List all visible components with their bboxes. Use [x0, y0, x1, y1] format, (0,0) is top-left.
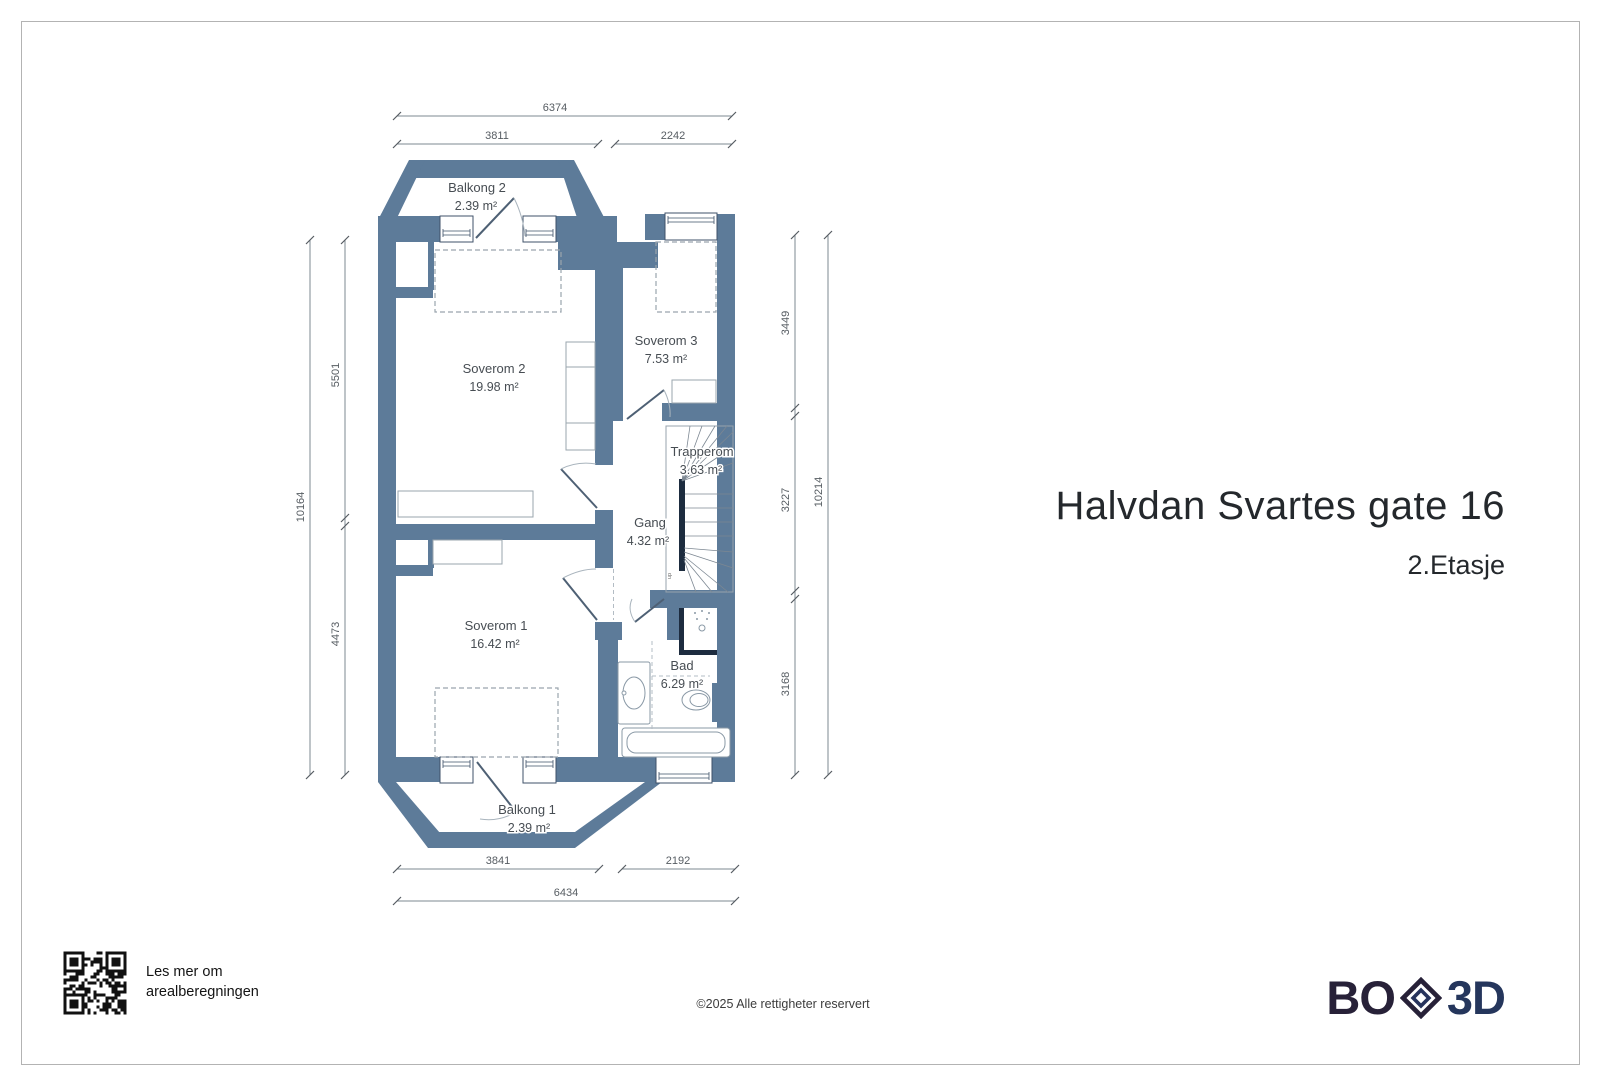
window: [440, 757, 473, 783]
window: [656, 757, 712, 783]
qr-caption: Les mer om arealberegningen: [146, 963, 259, 1002]
room-area-trapperom: 3.63 m²: [680, 463, 722, 477]
window: [523, 216, 556, 242]
room-area-gang: 4.32 m²: [627, 534, 669, 548]
dim-right-lower: 3168: [780, 672, 792, 696]
room-label-balkong2: Balkong 2: [448, 180, 506, 195]
copyright-text: ©2025 Alle rettigheter reservert: [583, 997, 983, 1011]
qr-code: [62, 950, 128, 1016]
soverom1-door: [563, 569, 597, 620]
qr-caption-line2: arealberegningen: [146, 983, 259, 1003]
room-label-soverom2: Soverom 2: [463, 361, 526, 376]
room-label-balkong1: Balkong 1: [498, 802, 556, 817]
wardrobe-soverom2: [398, 491, 533, 517]
logo-text-3d: 3D: [1447, 970, 1505, 1025]
qr-block: Les mer om arealberegningen: [62, 950, 259, 1016]
window: [440, 216, 473, 242]
room-label-soverom1: Soverom 1: [465, 618, 528, 633]
bed-soverom1: [435, 688, 558, 757]
bed-soverom2: [435, 250, 561, 312]
room-area-soverom2: 19.98 m²: [469, 380, 518, 394]
room-area-balkong1: 2.39 m²: [508, 821, 550, 835]
room-area-soverom1: 16.42 m²: [470, 637, 519, 651]
page-title: Halvdan Svartes gate 16: [1055, 484, 1505, 528]
dim-top-left: 3811: [485, 130, 509, 142]
shower-symbol: [694, 610, 710, 631]
wardrobe-soverom3: [672, 380, 716, 403]
wardrobe-soverom1: [433, 540, 502, 564]
dim-right-upper: 3449: [780, 311, 792, 335]
dim-right-total: 10214: [813, 477, 825, 508]
room-label-bad: Bad: [670, 658, 693, 673]
dim-bottom-left: 3841: [486, 855, 510, 867]
page-subtitle: 2.Etasje: [1055, 550, 1505, 581]
dim-left-upper: 5501: [330, 363, 342, 387]
dim-bottom-total: 6434: [554, 887, 578, 899]
dim-bottom-right: 2192: [666, 855, 690, 867]
bad-door: [630, 599, 664, 622]
dim-right-middle: 3227: [780, 488, 792, 512]
window: [665, 213, 717, 240]
soverom2-door: [561, 463, 597, 508]
room-area-bad: 6.29 m²: [661, 677, 703, 691]
logo: BO 3D: [1326, 970, 1505, 1025]
room-label-soverom3: Soverom 3: [635, 333, 698, 348]
logo-diamond-icon: [1400, 977, 1442, 1019]
dim-top-right: 2242: [661, 130, 685, 142]
qr-caption-line1: Les mer om: [146, 963, 259, 983]
window: [523, 757, 556, 783]
title-block: Halvdan Svartes gate 16 2.Etasje: [1055, 484, 1505, 581]
bed-soverom3: [656, 242, 716, 312]
room-label-trapperom: Trapperom: [670, 444, 733, 459]
room-area-soverom3: 7.53 m²: [645, 352, 687, 366]
stairs-up-label: up: [667, 573, 673, 579]
room-label-gang: Gang: [634, 515, 666, 530]
logo-text-bo: BO: [1326, 970, 1395, 1025]
dim-top-total: 6374: [543, 102, 567, 114]
page: { "header": { "title": "Halvdan Svartes …: [0, 0, 1600, 1085]
dim-left-lower: 4473: [330, 622, 342, 646]
dim-left-total: 10164: [295, 492, 307, 523]
room-area-balkong2: 2.39 m²: [455, 199, 497, 213]
